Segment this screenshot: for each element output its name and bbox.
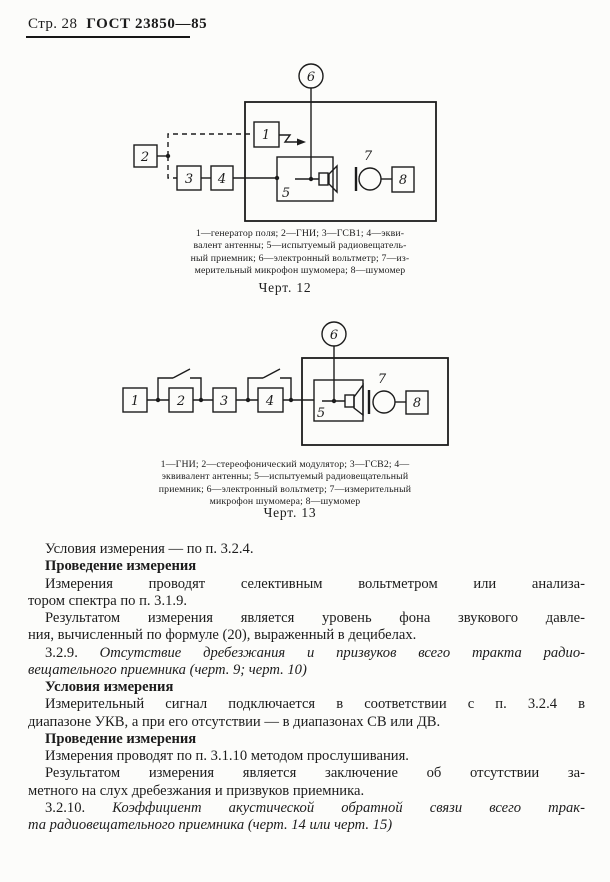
text-line: Условия измерения — по п. 3.2.4. (28, 541, 585, 558)
text-segment: Измерения проводят селективным вольтметр… (45, 576, 585, 592)
speaker-cone-icon (354, 385, 363, 415)
text-segment: Результатом измерения является заключени… (45, 765, 585, 781)
text-line: Результатом измерения является заключени… (28, 765, 585, 782)
figure-12-title: Черт. 12 (120, 280, 450, 296)
caption-line: мерительный микрофон шумомера; 8—шумомер (133, 265, 467, 277)
speaker-icon (319, 173, 328, 185)
text-segment: Отсутствие дребезжания и призвуков всего… (100, 645, 585, 661)
figure-13-caption: 1—ГНИ; 2—стереофонический модулятор; 3—Г… (105, 459, 465, 509)
text-line: ния, вычисленный по формуле (20), выраже… (28, 627, 585, 644)
bypass-switch-right (248, 378, 263, 400)
text-line: Измерения проводят по п. 3.1.10 методом … (28, 748, 585, 765)
text-segment: Проведение измерения (45, 558, 196, 574)
label-3: 3 (220, 394, 228, 409)
dashed-link-down (168, 156, 177, 178)
text-segment: вещательного приемника (черт. 9; черт. 1… (28, 662, 307, 678)
caption-line: эквивалент антенны; 5—испытуемый радиове… (105, 471, 465, 483)
caption-line: ный приемник; 6—электронный вольтметр; 7… (133, 253, 467, 265)
speaker-icon (345, 395, 354, 407)
measuring-chamber-box (245, 102, 436, 221)
label-3: 3 (185, 172, 193, 187)
figure-12-diagram: 6 1 2 3 4 5 7 8 (120, 60, 440, 230)
text-segment: та радиовещательного приемника (черт. 14… (28, 817, 392, 833)
caption-line: 1—ГНИ; 2—стереофонический модулятор; 3—Г… (105, 459, 465, 471)
text-line: 3.2.10. Коэффициент акустической обратно… (28, 800, 585, 817)
figure-13-diagram: 6 1 2 3 4 5 7 8 (105, 318, 455, 450)
figure-13-title: Черт. 13 (110, 505, 470, 521)
text-line: Измерения проводят селективным вольтметр… (28, 576, 585, 593)
body-text: Условия измерения — по п. 3.2.4.Проведен… (28, 541, 585, 834)
text-segment: Условия измерения — по п. 3.2.4. (45, 541, 253, 557)
figure-12-caption: 1—генератор поля; 2—ГНИ; 3—ГСВ1; 4—экви-… (133, 228, 467, 278)
text-line: Проведение измерения (28, 558, 585, 575)
text-line: 3.2.9. Отсутствие дребезжания и призвуко… (28, 645, 585, 662)
label-7: 7 (378, 372, 387, 387)
page-header: Стр. 28ГОСТ 23850—85 (28, 16, 207, 33)
text-segment: диапазоне УКВ, а при его отсутствии — в … (28, 714, 440, 730)
fig13-wires (123, 322, 448, 445)
label-6: 6 (307, 70, 315, 85)
text-segment: тором спектра по п. 3.1.9. (28, 593, 187, 609)
text-segment: Измерительный сигнал подключается в соот… (45, 696, 585, 712)
label-8: 8 (413, 396, 421, 411)
text-line: Результатом измерения является уровень ф… (28, 610, 585, 627)
fig13-caption-lines: 1—ГНИ; 2—стереофонический модулятор; 3—Г… (105, 459, 465, 509)
text-line: диапазоне УКВ, а при его отсутствии — в … (28, 714, 585, 731)
text-segment: Измерения проводят по п. 3.1.10 методом … (45, 748, 409, 764)
radiation-arrow (279, 135, 298, 142)
label-4: 4 (265, 394, 274, 409)
text-segment: Условия измерения (45, 679, 173, 695)
text-segment: 3.2.9. (45, 645, 100, 661)
text-segment: 3.2.10. (45, 800, 112, 816)
label-2: 2 (140, 150, 149, 165)
arrowhead-icon (297, 139, 306, 146)
label-8: 8 (399, 173, 407, 188)
caption-line: 1—генератор поля; 2—ГНИ; 3—ГСВ1; 4—экви- (133, 228, 467, 240)
switch-blade-icon (263, 369, 280, 378)
microphone-circle (373, 391, 395, 413)
text-line: Проведение измерения (28, 731, 585, 748)
text-segment: Результатом измерения является уровень ф… (45, 610, 585, 626)
bypass-switch-left (158, 378, 173, 400)
microphone-circle (359, 168, 381, 190)
label-1: 1 (262, 128, 270, 143)
text-line: тором спектра по п. 3.1.9. (28, 593, 585, 610)
text-line: вещательного приемника (черт. 9; черт. 1… (28, 662, 585, 679)
text-segment: Проведение измерения (45, 731, 196, 747)
label-5: 5 (317, 406, 325, 421)
label-4: 4 (217, 172, 226, 187)
fig13-labels: 6 1 2 3 4 5 7 8 (131, 328, 421, 421)
text-line: Условия измерения (28, 679, 585, 696)
header-rule (26, 36, 190, 38)
label-1: 1 (131, 394, 139, 409)
fig12-caption-lines: 1—генератор поля; 2—ГНИ; 3—ГСВ1; 4—экви-… (133, 228, 467, 278)
label-6: 6 (330, 328, 338, 343)
caption-line: валент антенны; 5—испытуемый радиовещате… (133, 240, 467, 252)
label-2: 2 (176, 394, 185, 409)
text-segment: ния, вычисленный по формуле (20), выраже… (28, 627, 416, 643)
standard-number: ГОСТ 23850—85 (86, 16, 207, 32)
text-segment: Коэффициент акустической обратной связи … (112, 800, 585, 816)
document-page: Стр. 28ГОСТ 23850—85 (0, 0, 610, 882)
dashed-link-up (168, 134, 254, 156)
label-7: 7 (364, 149, 373, 164)
fig12-labels: 6 1 2 3 4 5 7 8 (140, 70, 407, 201)
switch-blade-icon (173, 369, 190, 378)
text-line: метного на слух дребезжания и призвуков … (28, 783, 585, 800)
caption-line: приемник; 6—электронный вольтметр; 7—изм… (105, 484, 465, 496)
text-line: Измерительный сигнал подключается в соот… (28, 696, 585, 713)
page-number: Стр. 28 (28, 16, 77, 32)
text-segment: метного на слух дребезжания и призвуков … (28, 783, 364, 799)
label-5: 5 (282, 186, 290, 201)
text-line: та радиовещательного приемника (черт. 14… (28, 817, 585, 834)
